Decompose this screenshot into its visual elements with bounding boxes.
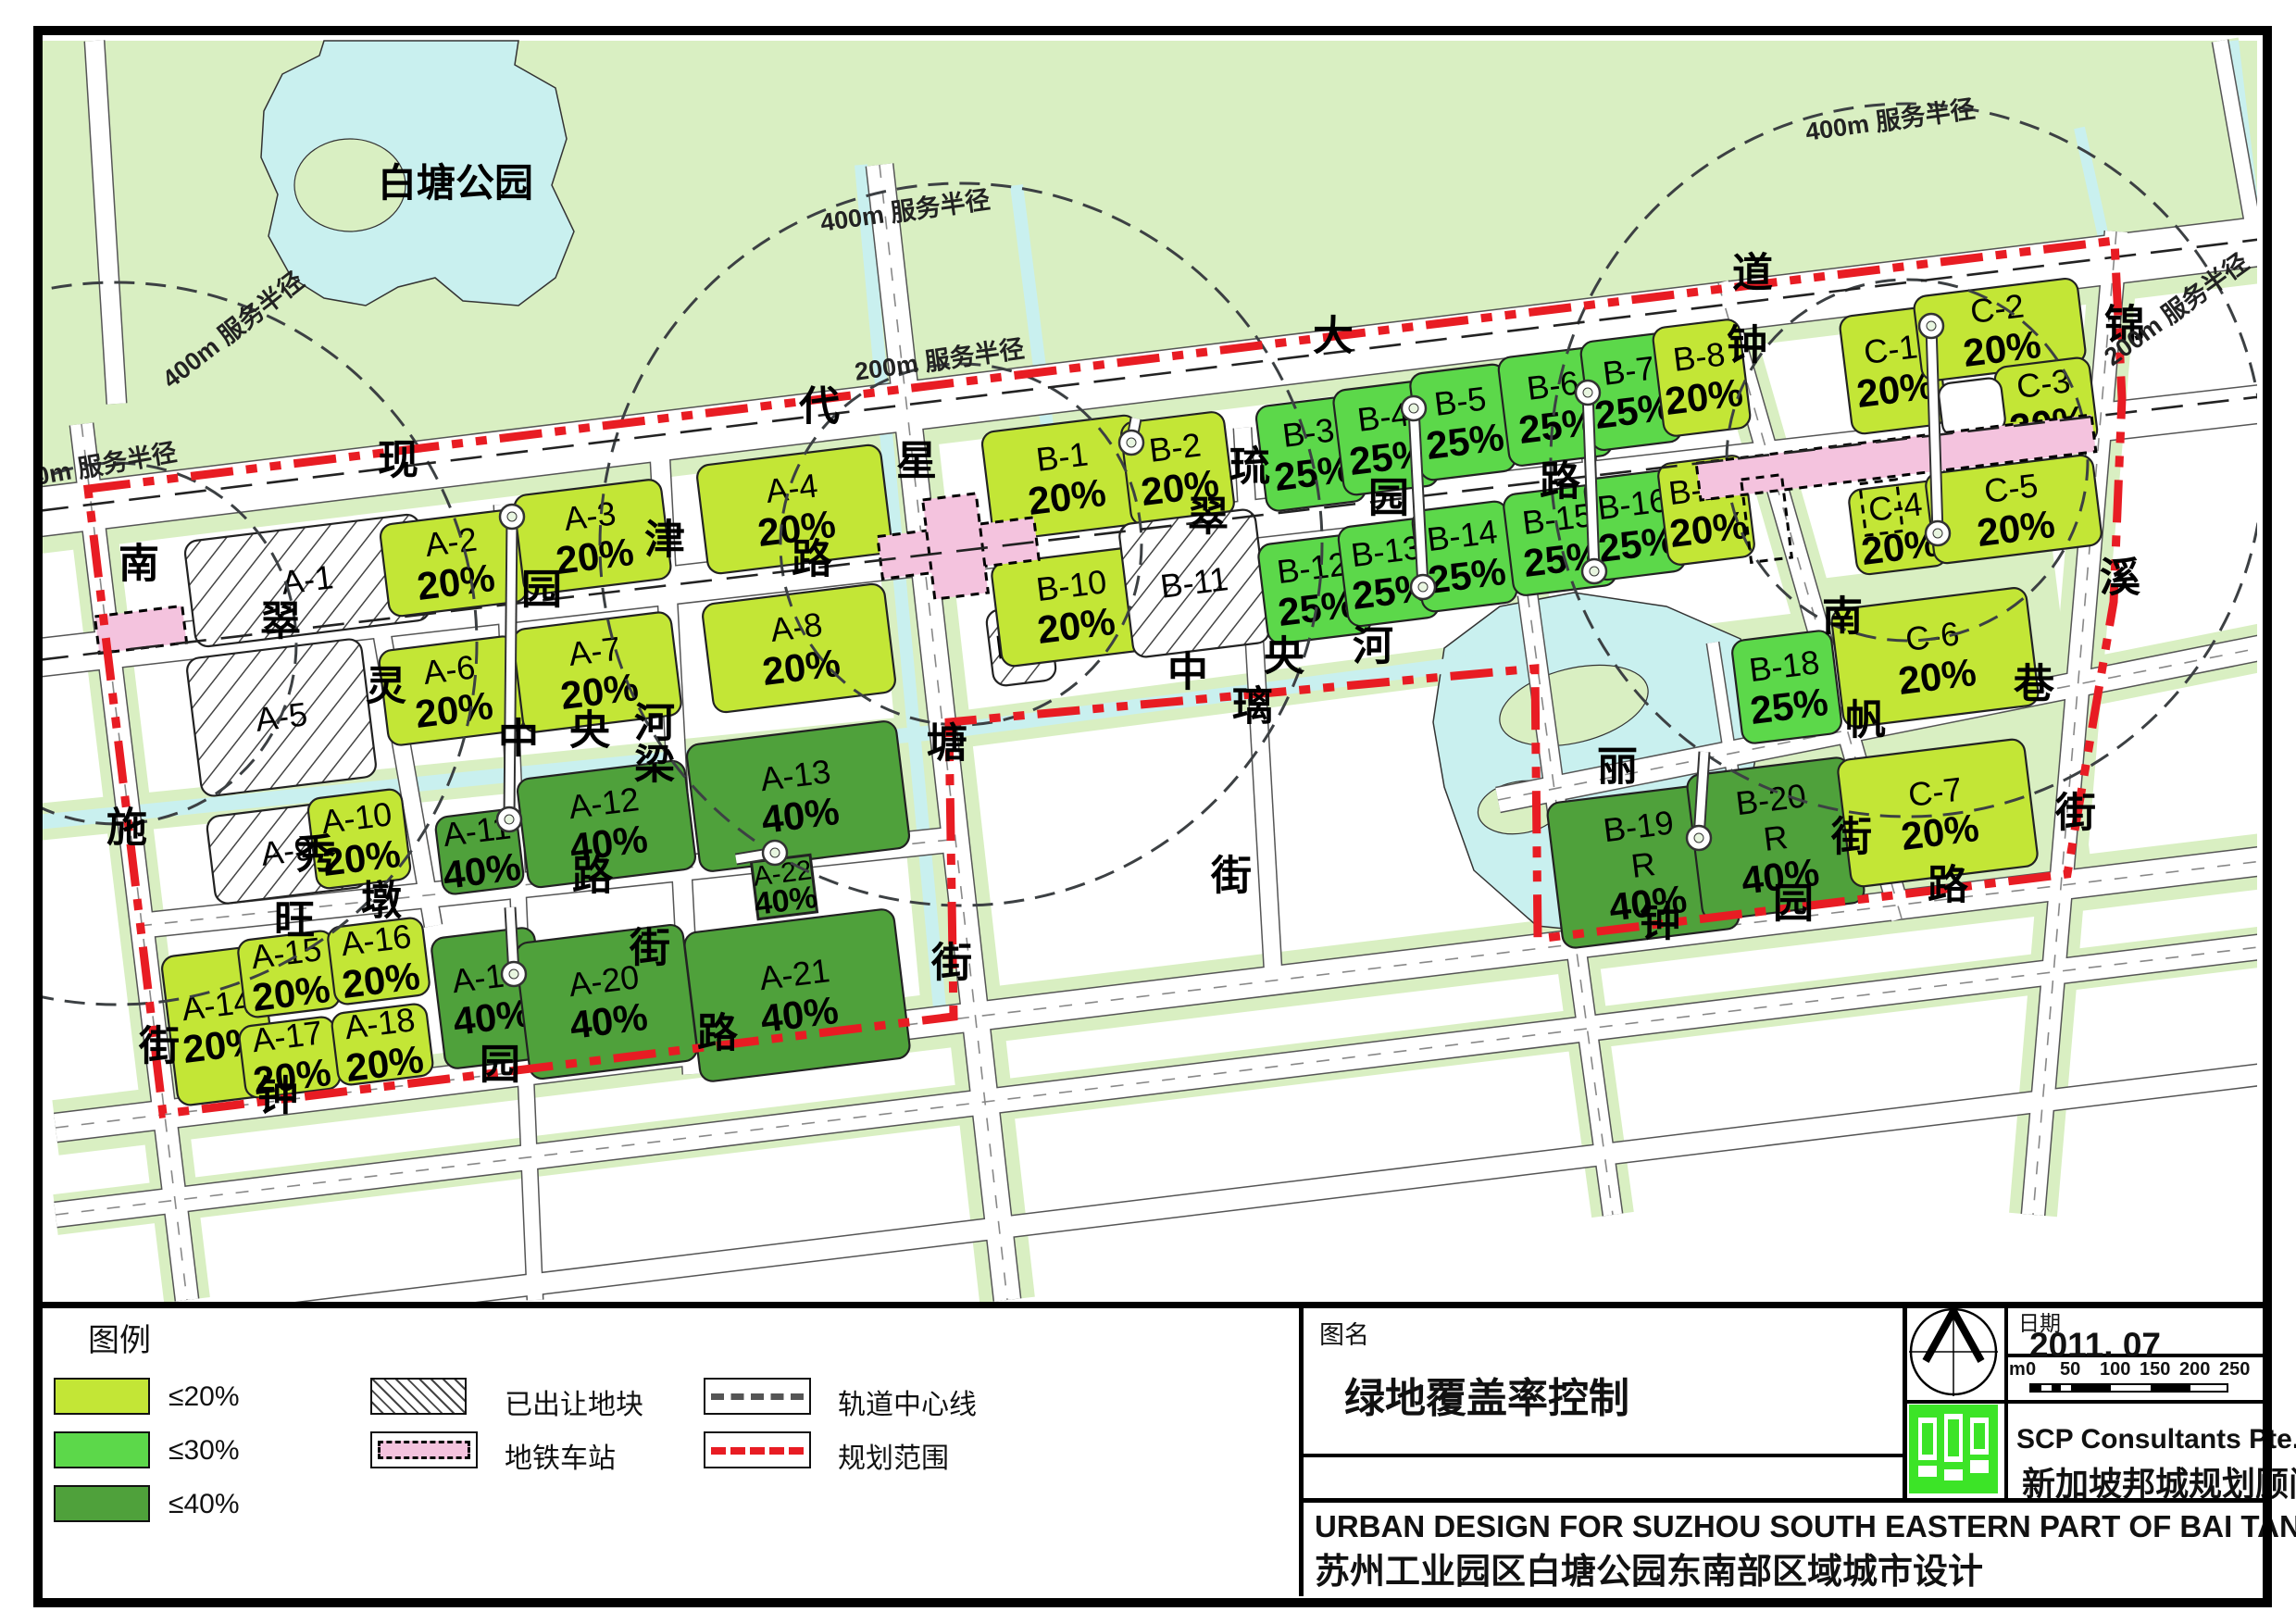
road-name-char: 园 (1773, 881, 1814, 927)
scale-tick: 50 (2060, 1359, 2080, 1380)
legend-label-p40: ≤40% (168, 1489, 240, 1520)
divider-h3 (1299, 1454, 1903, 1457)
road-name-char: 墩 (361, 879, 402, 924)
road-name-char: 南 (119, 542, 159, 587)
marker-node-dot (1409, 404, 1418, 413)
scale-seg (2031, 1385, 2041, 1391)
marker-node-dot (505, 815, 514, 824)
marker-node-dot (507, 512, 517, 521)
road-name-char: 琉 (1229, 444, 1270, 490)
scale-tick: 250 (2219, 1359, 2250, 1380)
legend-swatch-p20 (54, 1378, 150, 1415)
marker-node-dot (1933, 529, 1942, 538)
boundary-symbol (711, 1447, 804, 1455)
legend-label-metro: 地铁车站 (505, 1435, 616, 1476)
legend-swatch-p40 (54, 1485, 150, 1522)
scale-seg (2052, 1385, 2062, 1391)
road-name-char: 施 (106, 806, 147, 851)
scale-tick: 100 (2100, 1359, 2130, 1380)
road-name-char: 河 (634, 701, 675, 746)
road-name-char: 路 (1540, 459, 1581, 505)
legend-swatch-metro (370, 1431, 478, 1468)
road-name-char: 钟 (257, 1074, 298, 1119)
rail-symbol (711, 1393, 804, 1400)
road-name-char: 河 (1353, 624, 1393, 669)
project-title-cn: 苏州工业园区白塘公园东南部区域城市设计 (1315, 1543, 1983, 1593)
project-title-en: URBAN DESIGN FOR SUZHOU SOUTH EASTERN PA… (1315, 1509, 2296, 1544)
legend-swatch-rail (704, 1378, 811, 1415)
road-name-char: 璃 (1232, 684, 1273, 730)
marker-node-dot (509, 969, 518, 979)
road-name-char: 园 (1368, 476, 1409, 521)
road-name-char: 帆 (1845, 698, 1886, 743)
scale-tick: 0 (2026, 1359, 2036, 1380)
road-name-char: 翠 (1188, 494, 1229, 540)
road-name-char: 丽 (1597, 744, 1638, 790)
metro-symbol (378, 1441, 470, 1459)
road-name-char: 南 (1822, 594, 1863, 640)
divider-h2 (1903, 1400, 2263, 1404)
company-en: SCP Consultants Pte. Ltd. (2016, 1424, 2296, 1455)
legend-label-boundary: 规划范围 (838, 1435, 949, 1476)
marker-stem (509, 517, 512, 819)
company-cn: 新加坡邦城规划顾问 (2022, 1457, 2296, 1505)
legend-label-p30: ≤30% (168, 1435, 240, 1467)
road-name-char: 街 (2054, 791, 2096, 836)
scale-seg (2071, 1385, 2111, 1391)
legend-label-hatch: 已出让地块 (505, 1381, 643, 1422)
legend-swatch-boundary (704, 1431, 811, 1468)
planning-map: A-1A-5A-9A-220%A-320%A-420%A-620%A-720%A… (0, 0, 2296, 1305)
parcel-label: A-1 (280, 557, 336, 602)
road-name-char: 街 (930, 941, 972, 986)
road-name-char: 中 (1167, 650, 1208, 695)
divider-v1 (1299, 1302, 1304, 1596)
road-name-char: 巷 (2013, 662, 2055, 707)
scale-bar-strip (2029, 1383, 2228, 1393)
map-layers: A-1A-5A-9A-220%A-320%A-420%A-620%A-720%A… (0, 35, 2296, 1305)
road-name-char: 央 (569, 708, 611, 754)
marker-node-dot (770, 848, 780, 857)
road-name-char: 园 (480, 1043, 520, 1088)
road-name-char: 中 (498, 717, 539, 762)
marker-node-dot (1927, 321, 1936, 331)
legend-swatch-p30 (54, 1431, 150, 1468)
parcel-label: R (1628, 844, 1657, 885)
road-name-char: 路 (697, 1011, 739, 1056)
marker-node-dot (1694, 833, 1703, 843)
road-name-char: 路 (1928, 863, 1969, 908)
scale-seg (2151, 1385, 2190, 1391)
road-name-char: 道 (1732, 251, 1773, 296)
road-name-char: 街 (1830, 815, 1872, 860)
road-name-char: 梁 (634, 743, 675, 788)
marker-node-dot (1127, 438, 1136, 447)
road-name-char: 代 (798, 384, 840, 430)
road-name-char: 现 (378, 438, 418, 483)
road-name-char: 街 (1210, 854, 1252, 899)
road-name-char: 灵 (366, 664, 406, 709)
road-name-char: 街 (629, 926, 670, 971)
marker-node-dot (1583, 388, 1592, 397)
road-name-char: 溪 (2100, 556, 2141, 601)
scale-unit: m (2009, 1359, 2026, 1380)
legend-title: 图例 (88, 1315, 151, 1360)
road-name-char: 钟 (1727, 323, 1767, 369)
parcel-label: R (1761, 818, 1790, 858)
legend-label-rail: 轨道中心线 (838, 1381, 977, 1422)
marker-node-dot (1590, 567, 1599, 576)
scale-tick: 200 (2179, 1359, 2210, 1380)
road-name-char: 路 (572, 854, 614, 899)
road-name-char: 大 (1313, 314, 1354, 359)
scp-logo (1909, 1405, 1998, 1493)
legend-label-p20: ≤20% (168, 1381, 240, 1413)
road-name-char: 钟 (1640, 900, 1680, 945)
road-name-char: 津 (644, 518, 685, 563)
marker-node-dot (1418, 582, 1428, 592)
road-name-char: 星 (896, 439, 937, 484)
road-name-char: 街 (138, 1024, 180, 1069)
north-arrow (1903, 1304, 2004, 1400)
road-name-char: 塘 (927, 721, 967, 767)
drawing-title: 绿地覆盖率控制 (1344, 1365, 1629, 1424)
road-name-char: 路 (792, 537, 833, 582)
legend-swatch-hatch (370, 1378, 467, 1415)
road-name-char: 旺 (274, 898, 315, 943)
plan-sheet: A-1A-5A-9A-220%A-320%A-420%A-620%A-720%A… (0, 0, 2296, 1624)
road-name-char: 园 (521, 568, 562, 613)
road-name-char: 央 (1264, 634, 1305, 680)
road-name-char: 秀 (294, 832, 336, 878)
scale-tick: 150 (2140, 1359, 2170, 1380)
road-name-char: 翠 (260, 599, 301, 644)
drawing-name-label: 图名 (1319, 1315, 1369, 1351)
park-name-label: 白塘公园 (378, 161, 533, 205)
